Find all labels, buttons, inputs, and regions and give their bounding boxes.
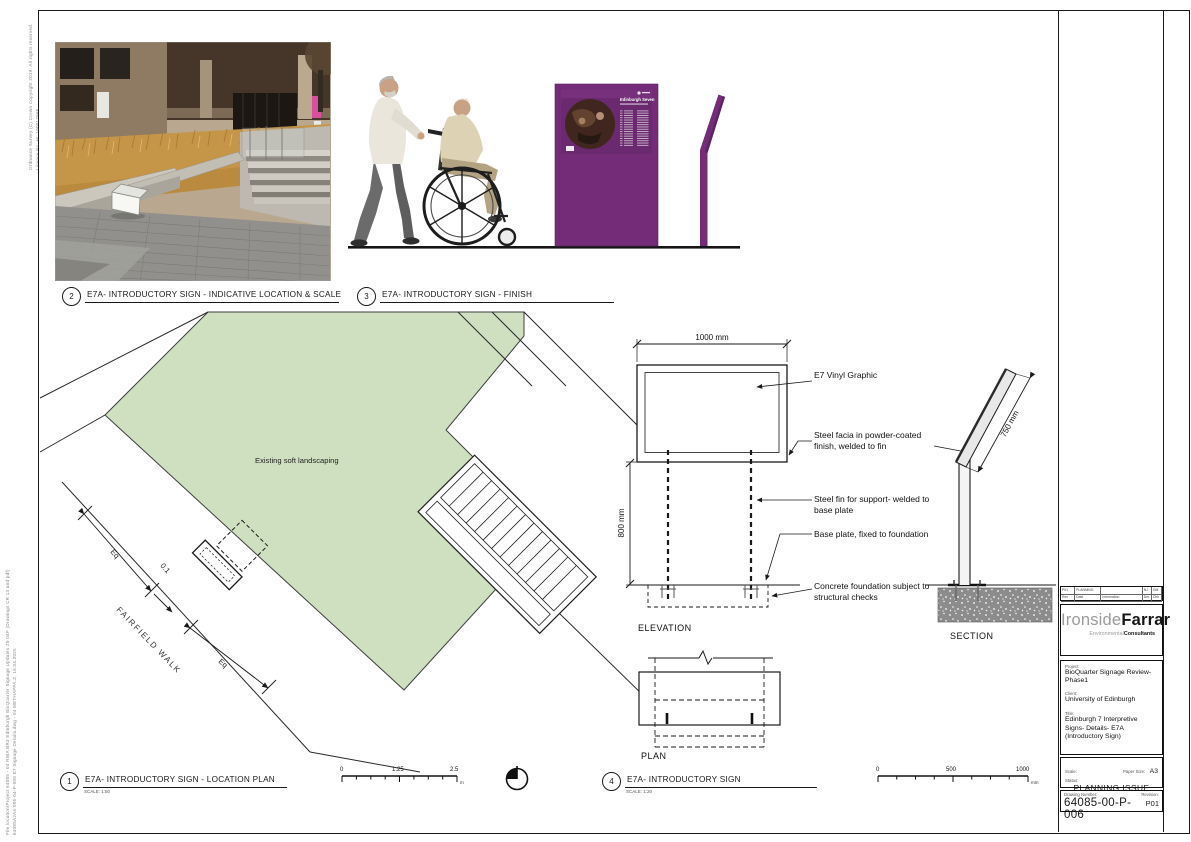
sign-side-view — [700, 95, 725, 247]
drawing4-title: E7A- INTRODUCTORY SIGN — [625, 772, 817, 788]
plan-label: PLAN — [641, 751, 667, 761]
anno-facia: Steel facia in powder-coated finish, wel… — [814, 430, 944, 452]
street-label: FAIRFIELD WALK — [115, 605, 183, 675]
drawing3-number: 3 — [357, 287, 376, 306]
paper-label: Paper Size: — [1123, 769, 1145, 774]
drawing4-scale: SCALE: 1:20 — [626, 789, 652, 794]
rev-r1c4: NJ — [1143, 587, 1152, 595]
section-view: 750 mm — [925, 369, 1056, 622]
rev-r1c3 — [1101, 587, 1142, 595]
project-name: BioQuarter Signage Review- Phase1 — [1065, 669, 1158, 686]
drawing3-title: E7A- INTRODUCTORY SIGN - FINISH — [380, 287, 614, 303]
drawing2-title: E7A- INTRODUCTORY SIGN - INDICATIVE LOCA… — [85, 287, 339, 303]
concrete-foundation — [938, 588, 1052, 622]
dim-panel: 750 mm — [999, 409, 1021, 439]
scale-mm-unit: mm — [1031, 780, 1039, 785]
drawing4-number: 4 — [602, 772, 621, 791]
dim-eq-lower: Eq — [217, 657, 230, 670]
drawing1-title: E7A- INTRODUCTORY SIGN - LOCATION PLAN — [83, 772, 287, 788]
elevation-label: ELEVATION — [638, 623, 692, 633]
rev-r2c2: Date — [1075, 595, 1101, 603]
rev-r1c2: PLANNING — [1075, 587, 1101, 595]
status-box: Scale: Paper Size: A3 Status: PLANNING I… — [1060, 757, 1163, 788]
anno-fin: Steel fin for support- welded to base pl… — [814, 494, 944, 516]
logo-farrar: Farrar — [1121, 611, 1170, 629]
rev-r1c5: GM — [1152, 587, 1162, 595]
dim-height: 800 mm — [617, 508, 626, 537]
rev-r2c5: Chk — [1152, 595, 1162, 603]
elevation-view: 1000 mm 800 mm — [617, 333, 800, 607]
plan-view — [639, 651, 780, 747]
scale-m-unit: m — [460, 780, 464, 785]
scale-m-end: 2.5 — [450, 767, 459, 773]
scale-mm-0: 0 — [876, 767, 880, 773]
finish-illustration: Edinburgh Seven — [345, 52, 745, 252]
project-info-box: Project: BioQuarter Signage Review- Phas… — [1060, 660, 1163, 755]
logo-consultants: Consultants — [1124, 631, 1155, 637]
wheelchair-figure — [424, 98, 515, 245]
sign-front-view: Edinburgh Seven — [555, 84, 658, 246]
section-label: SECTION — [950, 631, 994, 641]
north-arrow — [503, 765, 531, 793]
landscaping-label: Existing soft landscaping — [255, 456, 339, 465]
drawing-title: Edinburgh 7 Interpretive Signs- Details-… — [1065, 716, 1158, 741]
drawing-number: 64085-00-P-006 — [1064, 797, 1146, 821]
rev-r2c1: Rev — [1061, 595, 1075, 603]
dim-offset: 0.1 — [159, 561, 173, 575]
anno-base: Base plate, fixed to foundation — [814, 529, 944, 540]
scale-bar-mm: 0 500 1000 mm — [874, 763, 1044, 787]
rev-r2c3: Information — [1101, 595, 1142, 603]
revision-table: P01 PLANNING NJ GM Rev Date Information … — [1060, 586, 1163, 601]
drawing1-scale: SCALE: 1:50 — [84, 789, 110, 794]
paper-size: A3 — [1150, 768, 1158, 775]
logo-environmental: Environmental — [1089, 631, 1123, 637]
scale-mm-end: 1000 — [1016, 767, 1030, 773]
scale-m-0: 0 — [340, 767, 344, 773]
dim-eq-upper: Eq — [109, 547, 122, 560]
site-photo — [55, 42, 331, 281]
rev-r1c1: P01 — [1061, 587, 1075, 595]
sign-details: 1000 mm 800 mm — [608, 325, 1060, 770]
anno-foundation: Concrete foundation subject to structura… — [814, 581, 944, 603]
revision-value: P01 — [1146, 799, 1159, 808]
anno-vinyl: E7 Vinyl Graphic — [814, 370, 944, 381]
drawing1-number: 1 — [60, 772, 79, 791]
logo-ironside: Ironside — [1061, 611, 1121, 629]
scale-label: Scale: — [1065, 769, 1077, 774]
scale-m-mid: 1.25 — [392, 767, 404, 773]
drawing-number-box: Drawing Number: Revision: 64085-00-P-006… — [1060, 790, 1163, 812]
scale-bar-metres: 0 1.25 2.5 m — [338, 763, 470, 787]
company-logo: IronsideFarrar EnvironmentalConsultants — [1060, 604, 1163, 656]
man-figure — [351, 76, 425, 247]
rev-r2c4: Drn — [1143, 595, 1152, 603]
annotation-leaders — [757, 381, 966, 596]
drawing-sheet: Ordnance Survey (C) Crown Copyright 2019… — [0, 0, 1191, 842]
location-plan: Eq 0.1 Eq Existing soft landscaping FAIR… — [38, 305, 653, 790]
scale-mm-mid: 500 — [946, 767, 957, 773]
dim-width: 1000 mm — [695, 333, 729, 342]
titleblock-right-edge — [1163, 10, 1164, 832]
drawing2-label: 2 E7A- INTRODUCTORY SIGN - INDICATIVE LO… — [62, 287, 339, 306]
drawing3-label: 3 E7A- INTRODUCTORY SIGN - FINISH — [357, 287, 614, 306]
client-name: University of Edinburgh — [1065, 696, 1158, 704]
drawing2-number: 2 — [62, 287, 81, 306]
plot-stamp: File location\Project 64085 - 04 RIBA BR… — [4, 555, 16, 835]
sign-heading: Edinburgh Seven — [620, 97, 655, 102]
